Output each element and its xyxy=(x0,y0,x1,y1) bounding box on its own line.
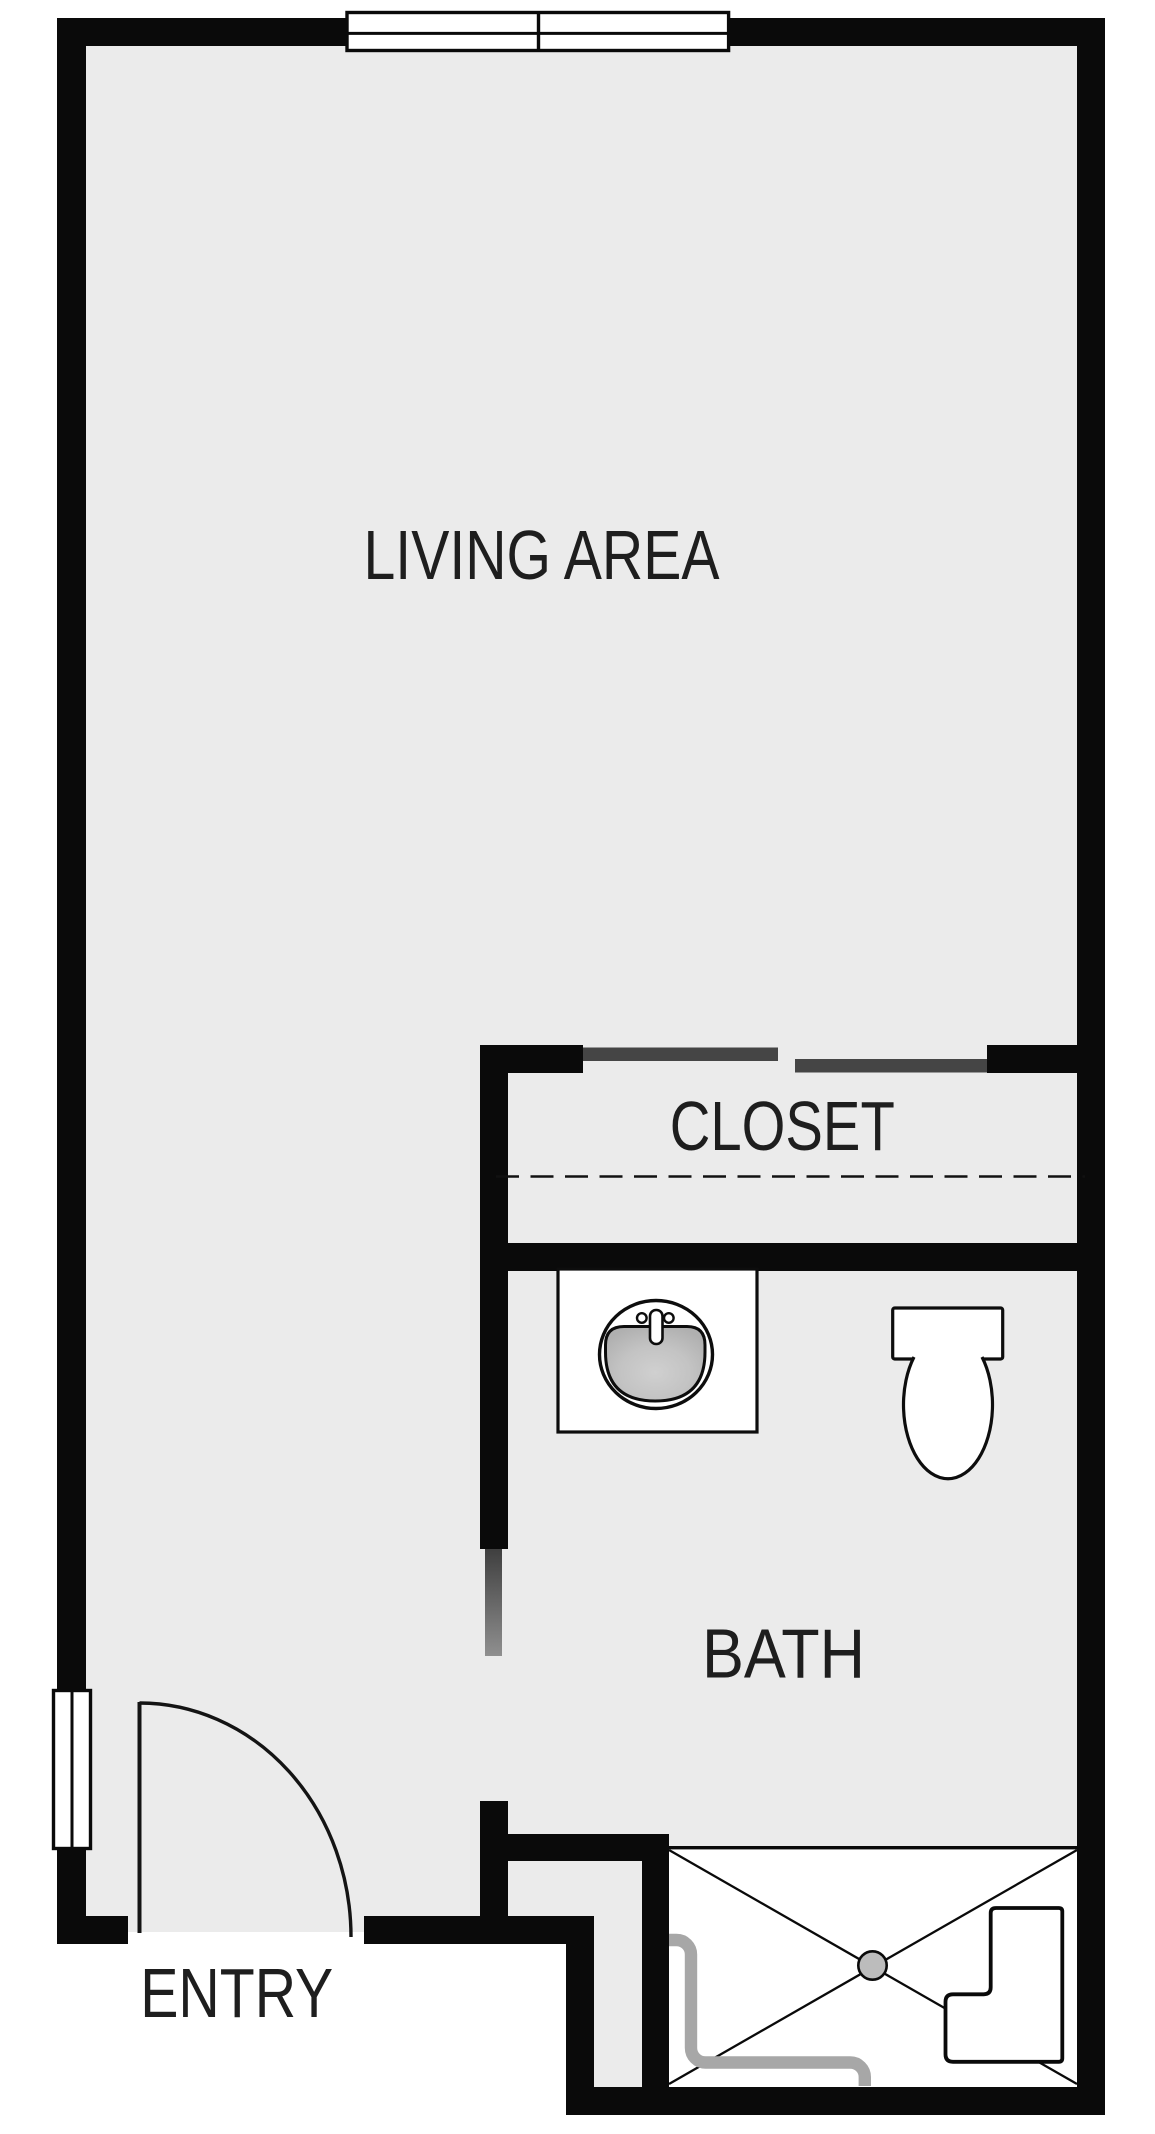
svg-text:CLOSET: CLOSET xyxy=(670,1087,895,1165)
svg-text:ENTRY: ENTRY xyxy=(140,1954,333,2032)
svg-text:LIVING AREA: LIVING AREA xyxy=(364,516,720,594)
svg-text:BATH: BATH xyxy=(702,1615,865,1693)
